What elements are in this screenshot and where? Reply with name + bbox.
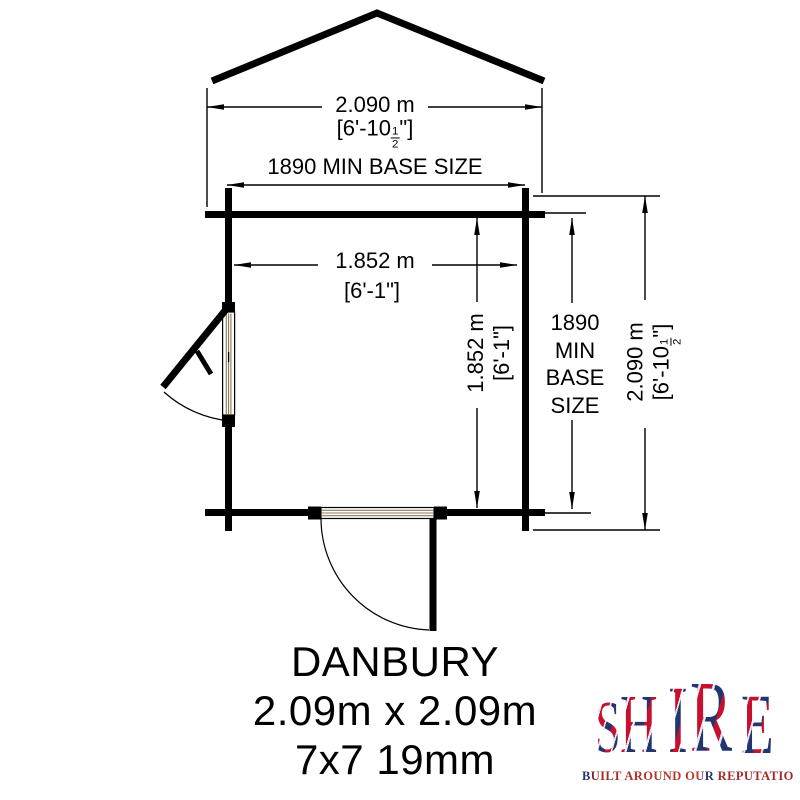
dim-min-base-vertical-line: MIN bbox=[546, 337, 605, 365]
dim-overall-depth: 2.090 m [6'-1012"] bbox=[622, 322, 683, 402]
window bbox=[163, 302, 235, 427]
logo-letter: R bbox=[690, 678, 732, 758]
logo-tagline: BUILT AROUND OUR REPUTATION bbox=[582, 769, 794, 784]
logo-letter: S bbox=[595, 700, 621, 758]
arrow-right-icon bbox=[500, 262, 517, 268]
dim-min-base-vertical-line: 1890 bbox=[546, 309, 605, 337]
roof-apex-outline bbox=[212, 13, 544, 81]
arrow-down-icon bbox=[642, 513, 648, 530]
arrow-left-icon bbox=[227, 182, 244, 188]
arrow-left-icon bbox=[234, 262, 251, 268]
dim-internal-depth: 1.852 m [6'-1"] bbox=[463, 313, 515, 393]
dim-min-base-vertical-line: BASE bbox=[546, 364, 605, 392]
door-jamb-left bbox=[308, 507, 321, 520]
door bbox=[308, 507, 447, 632]
arrow-down-icon bbox=[474, 491, 480, 508]
dim-min-base-vertical-line: SIZE bbox=[546, 392, 605, 420]
door-swing-arc bbox=[321, 519, 429, 630]
door-leaf-open bbox=[430, 519, 437, 631]
dim-overall-depth-imperial: [6'-1012"] bbox=[648, 322, 683, 402]
arrow-right-icon bbox=[508, 182, 525, 188]
window-swing-arc bbox=[164, 392, 230, 421]
product-spec: 7x7 19mm bbox=[200, 735, 590, 784]
dim-overall-depth-metric: 2.090 m bbox=[622, 322, 648, 402]
window-open-sash bbox=[163, 307, 228, 387]
product-name: DANBURY bbox=[200, 637, 590, 686]
arrow-down-icon bbox=[569, 492, 575, 509]
logo-letter: H bbox=[620, 692, 658, 758]
dim-min-base-vertical: 1890 MIN BASE SIZE bbox=[546, 309, 605, 419]
dim-internal-width-metric: 1.852 m bbox=[335, 250, 415, 272]
door-jamb-right bbox=[434, 507, 447, 520]
arrow-right-icon bbox=[525, 104, 542, 110]
window-stay bbox=[197, 351, 211, 374]
dim-internal-width-imperial: [6'-1"] bbox=[344, 280, 400, 302]
arrow-up-icon bbox=[569, 218, 575, 235]
arrow-left-icon bbox=[207, 104, 224, 110]
shire-logo: S H I R E BUILT AROUND OUR REPUTATION bbox=[580, 680, 795, 790]
dim-overall-width-metric: 2.090 m bbox=[335, 94, 415, 116]
dim-overall-width-imperial: [6'-1012"] bbox=[337, 117, 414, 150]
logo-letter: E bbox=[741, 691, 774, 758]
product-summary: DANBURY 2.09m x 2.09m 7x7 19mm bbox=[200, 637, 590, 784]
dim-internal-depth-imperial: [6'-1"] bbox=[489, 313, 515, 393]
product-footprint: 2.09m x 2.09m bbox=[200, 686, 590, 735]
dim-min-base-horizontal-label: 1890 MIN BASE SIZE bbox=[267, 156, 482, 178]
dim-internal-depth-metric: 1.852 m bbox=[463, 313, 489, 393]
arrow-up-icon bbox=[474, 218, 480, 235]
arrow-up-icon bbox=[642, 196, 648, 213]
floor-plan-page: 2.090 m [6'-1012"] 1890 MIN BASE SIZE 1.… bbox=[0, 0, 800, 800]
logo-letter: I bbox=[668, 683, 688, 758]
